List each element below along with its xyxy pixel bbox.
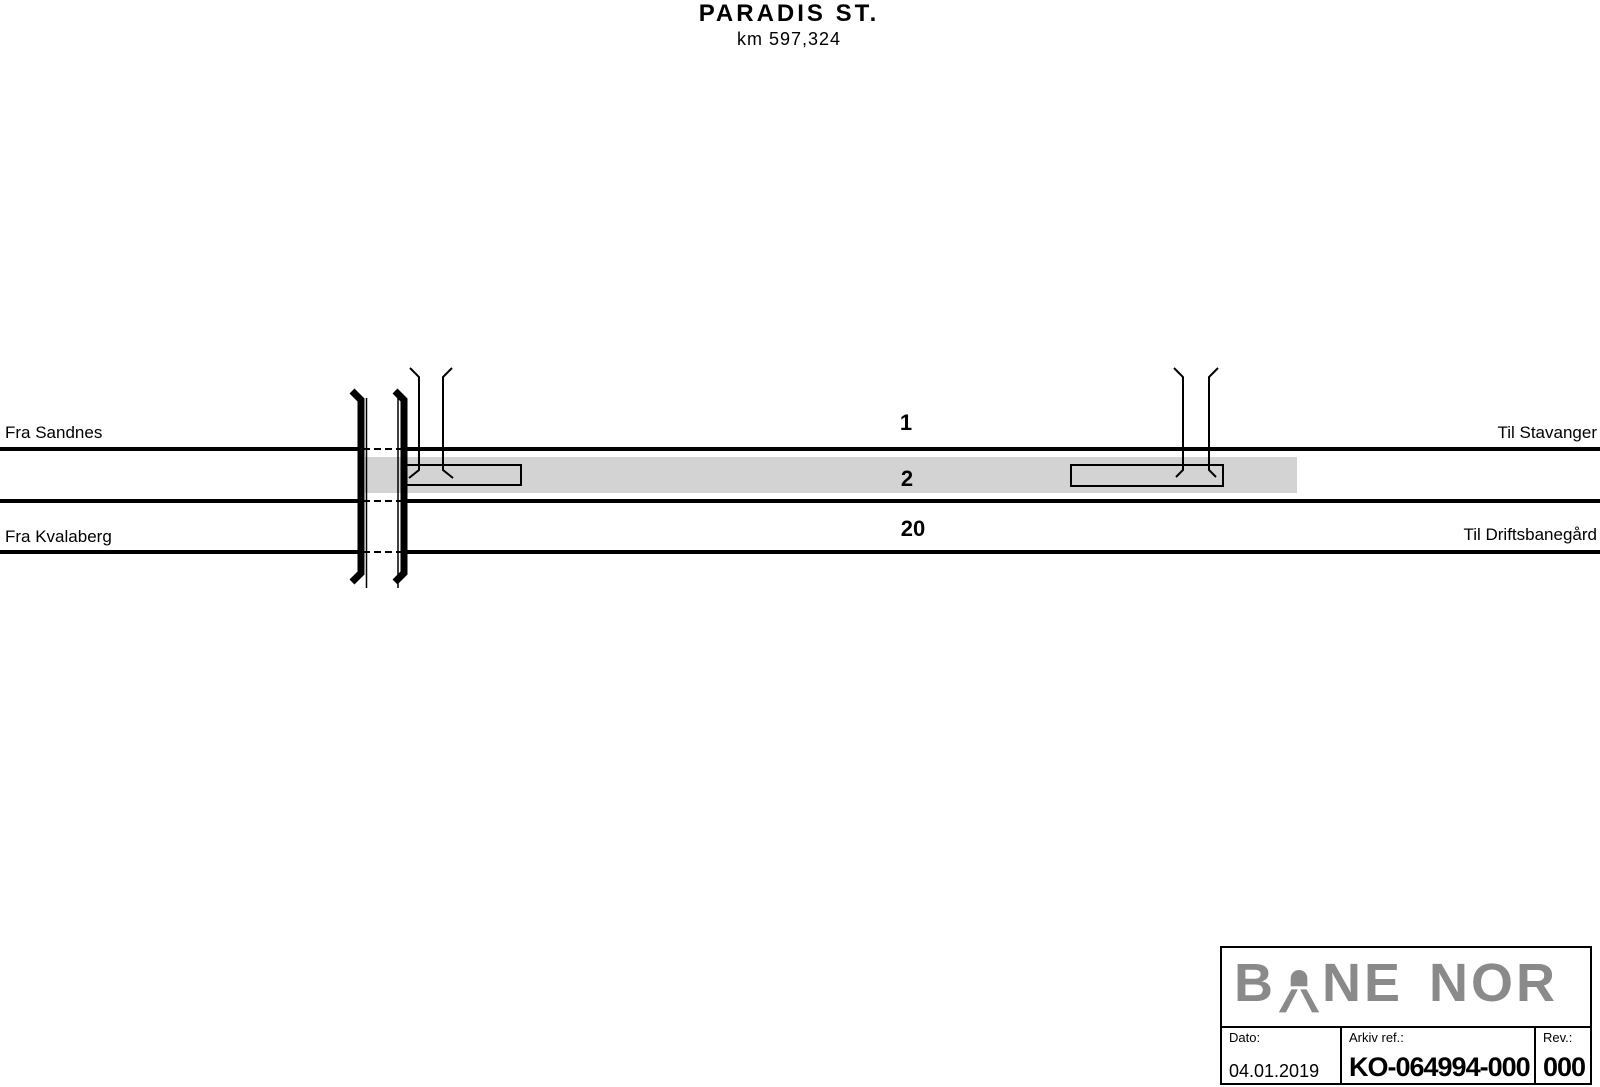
endpoint-label-til-stavanger: Til Stavanger — [1497, 423, 1597, 443]
archive-ref-value: KO-064994-000 — [1349, 1053, 1529, 1081]
revision-cell: Rev.: 000 — [1536, 1028, 1590, 1083]
archive-ref-label: Arkiv ref.: — [1349, 1031, 1529, 1045]
track-number-1: 1 — [884, 410, 928, 436]
schematic-track-plan: PARADIS ST. km 597,324 Fra Sandnes Fra K… — [0, 0, 1600, 1087]
endpoint-label-fra-kvalaberg: Fra Kvalaberg — [5, 527, 112, 547]
logo-text-b: B — [1234, 956, 1276, 1010]
title-block: B NE NOR Dato: 04.01.2019 Arkiv ref.: KO… — [1220, 946, 1592, 1085]
date-value: 04.01.2019 — [1229, 1061, 1335, 1081]
revision-value: 000 — [1543, 1053, 1585, 1081]
bane-nor-logo: B NE NOR — [1222, 948, 1590, 1028]
endpoint-label-fra-sandnes: Fra Sandnes — [5, 423, 102, 443]
title-block-fields: Dato: 04.01.2019 Arkiv ref.: KO-064994-0… — [1222, 1028, 1590, 1083]
date-cell: Dato: 04.01.2019 — [1222, 1028, 1342, 1083]
platform-band — [365, 457, 1297, 493]
track-diagram — [0, 0, 1600, 1087]
station-km: km 597,324 — [0, 28, 1578, 50]
date-label: Dato: — [1229, 1031, 1335, 1045]
drawing-header: PARADIS ST. km 597,324 — [0, 0, 1578, 50]
logo-text-ne: NE — [1322, 956, 1403, 1010]
tunnel-a-icon — [1278, 963, 1320, 1019]
archive-ref-cell: Arkiv ref.: KO-064994-000 — [1342, 1028, 1536, 1083]
logo-text-nor: NOR — [1429, 956, 1558, 1010]
track-number-2: 2 — [885, 466, 929, 492]
endpoint-label-til-driftsbanegard: Til Driftsbanegård — [1463, 525, 1597, 545]
station-title: PARADIS ST. — [0, 0, 1578, 28]
revision-label: Rev.: — [1543, 1031, 1585, 1045]
track-number-20: 20 — [891, 516, 935, 542]
